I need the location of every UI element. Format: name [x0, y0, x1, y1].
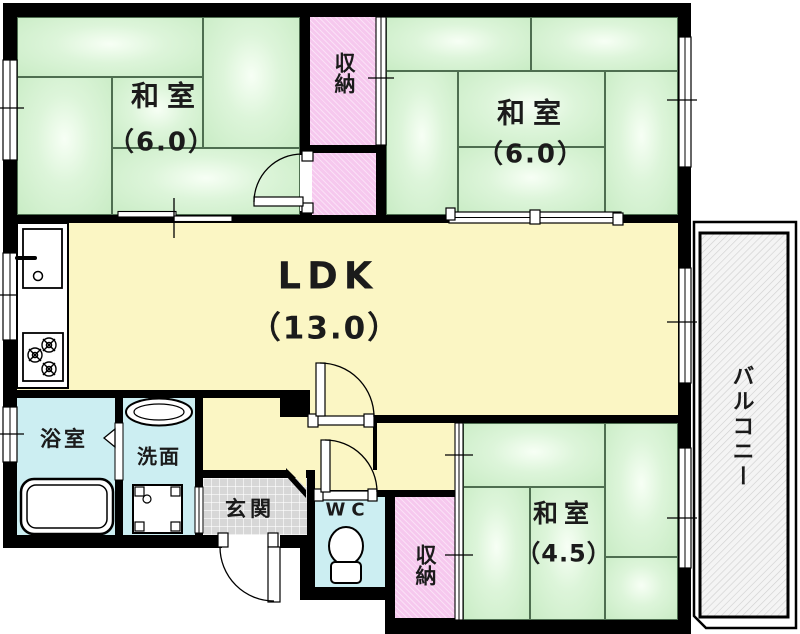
size-washitsu-nw: （6.0）	[108, 129, 216, 156]
corridor-hall	[203, 398, 280, 470]
label-washroom: 洗面	[137, 447, 181, 468]
corridor-doorway	[310, 415, 373, 470]
label-bathroom: 浴室	[40, 428, 88, 450]
tatami-mat	[386, 17, 531, 71]
label-washitsu-se: 和室	[533, 501, 595, 527]
corridor-wc-front	[315, 470, 455, 490]
floorplan: 和室 （6.0） 和室 （6.0） LDK （13.0） 和室 （4.5） 収納…	[0, 0, 800, 634]
label-balcony: バルコニー	[729, 365, 752, 490]
label-washitsu-nw: 和室	[131, 81, 203, 110]
tatami-mat	[17, 17, 203, 77]
tatami-mat	[112, 148, 300, 215]
label-closet-top: 収納	[333, 52, 355, 94]
label-wc: WC	[325, 502, 370, 521]
tatami-mat	[605, 71, 678, 215]
tatami-mat	[531, 17, 678, 71]
room-bathroom	[17, 398, 115, 535]
size-washitsu-se: （4.5）	[516, 541, 612, 566]
label-ldk: LDK	[278, 258, 379, 297]
room-ldk-lower-strip	[310, 390, 678, 415]
corridor-closet-front	[377, 423, 455, 470]
label-washitsu-ne: 和室	[497, 98, 569, 127]
tatami-mat	[605, 423, 678, 557]
corridor-hall-jog	[280, 417, 310, 470]
tatami-mat	[605, 557, 678, 620]
label-genkan: 玄関	[225, 498, 275, 520]
room-ldk	[17, 223, 678, 390]
size-washitsu-ne: （6.0）	[477, 141, 585, 168]
label-closet-se: 収納	[414, 544, 436, 586]
room-washitsu-nw	[17, 17, 300, 215]
tatami-mat	[463, 423, 605, 487]
room-closet-nw-lower	[312, 153, 376, 215]
tatami-mat	[203, 17, 300, 148]
size-ldk: （13.0）	[250, 313, 401, 346]
tatami-mat	[17, 77, 112, 215]
tatami-mat	[386, 71, 458, 215]
